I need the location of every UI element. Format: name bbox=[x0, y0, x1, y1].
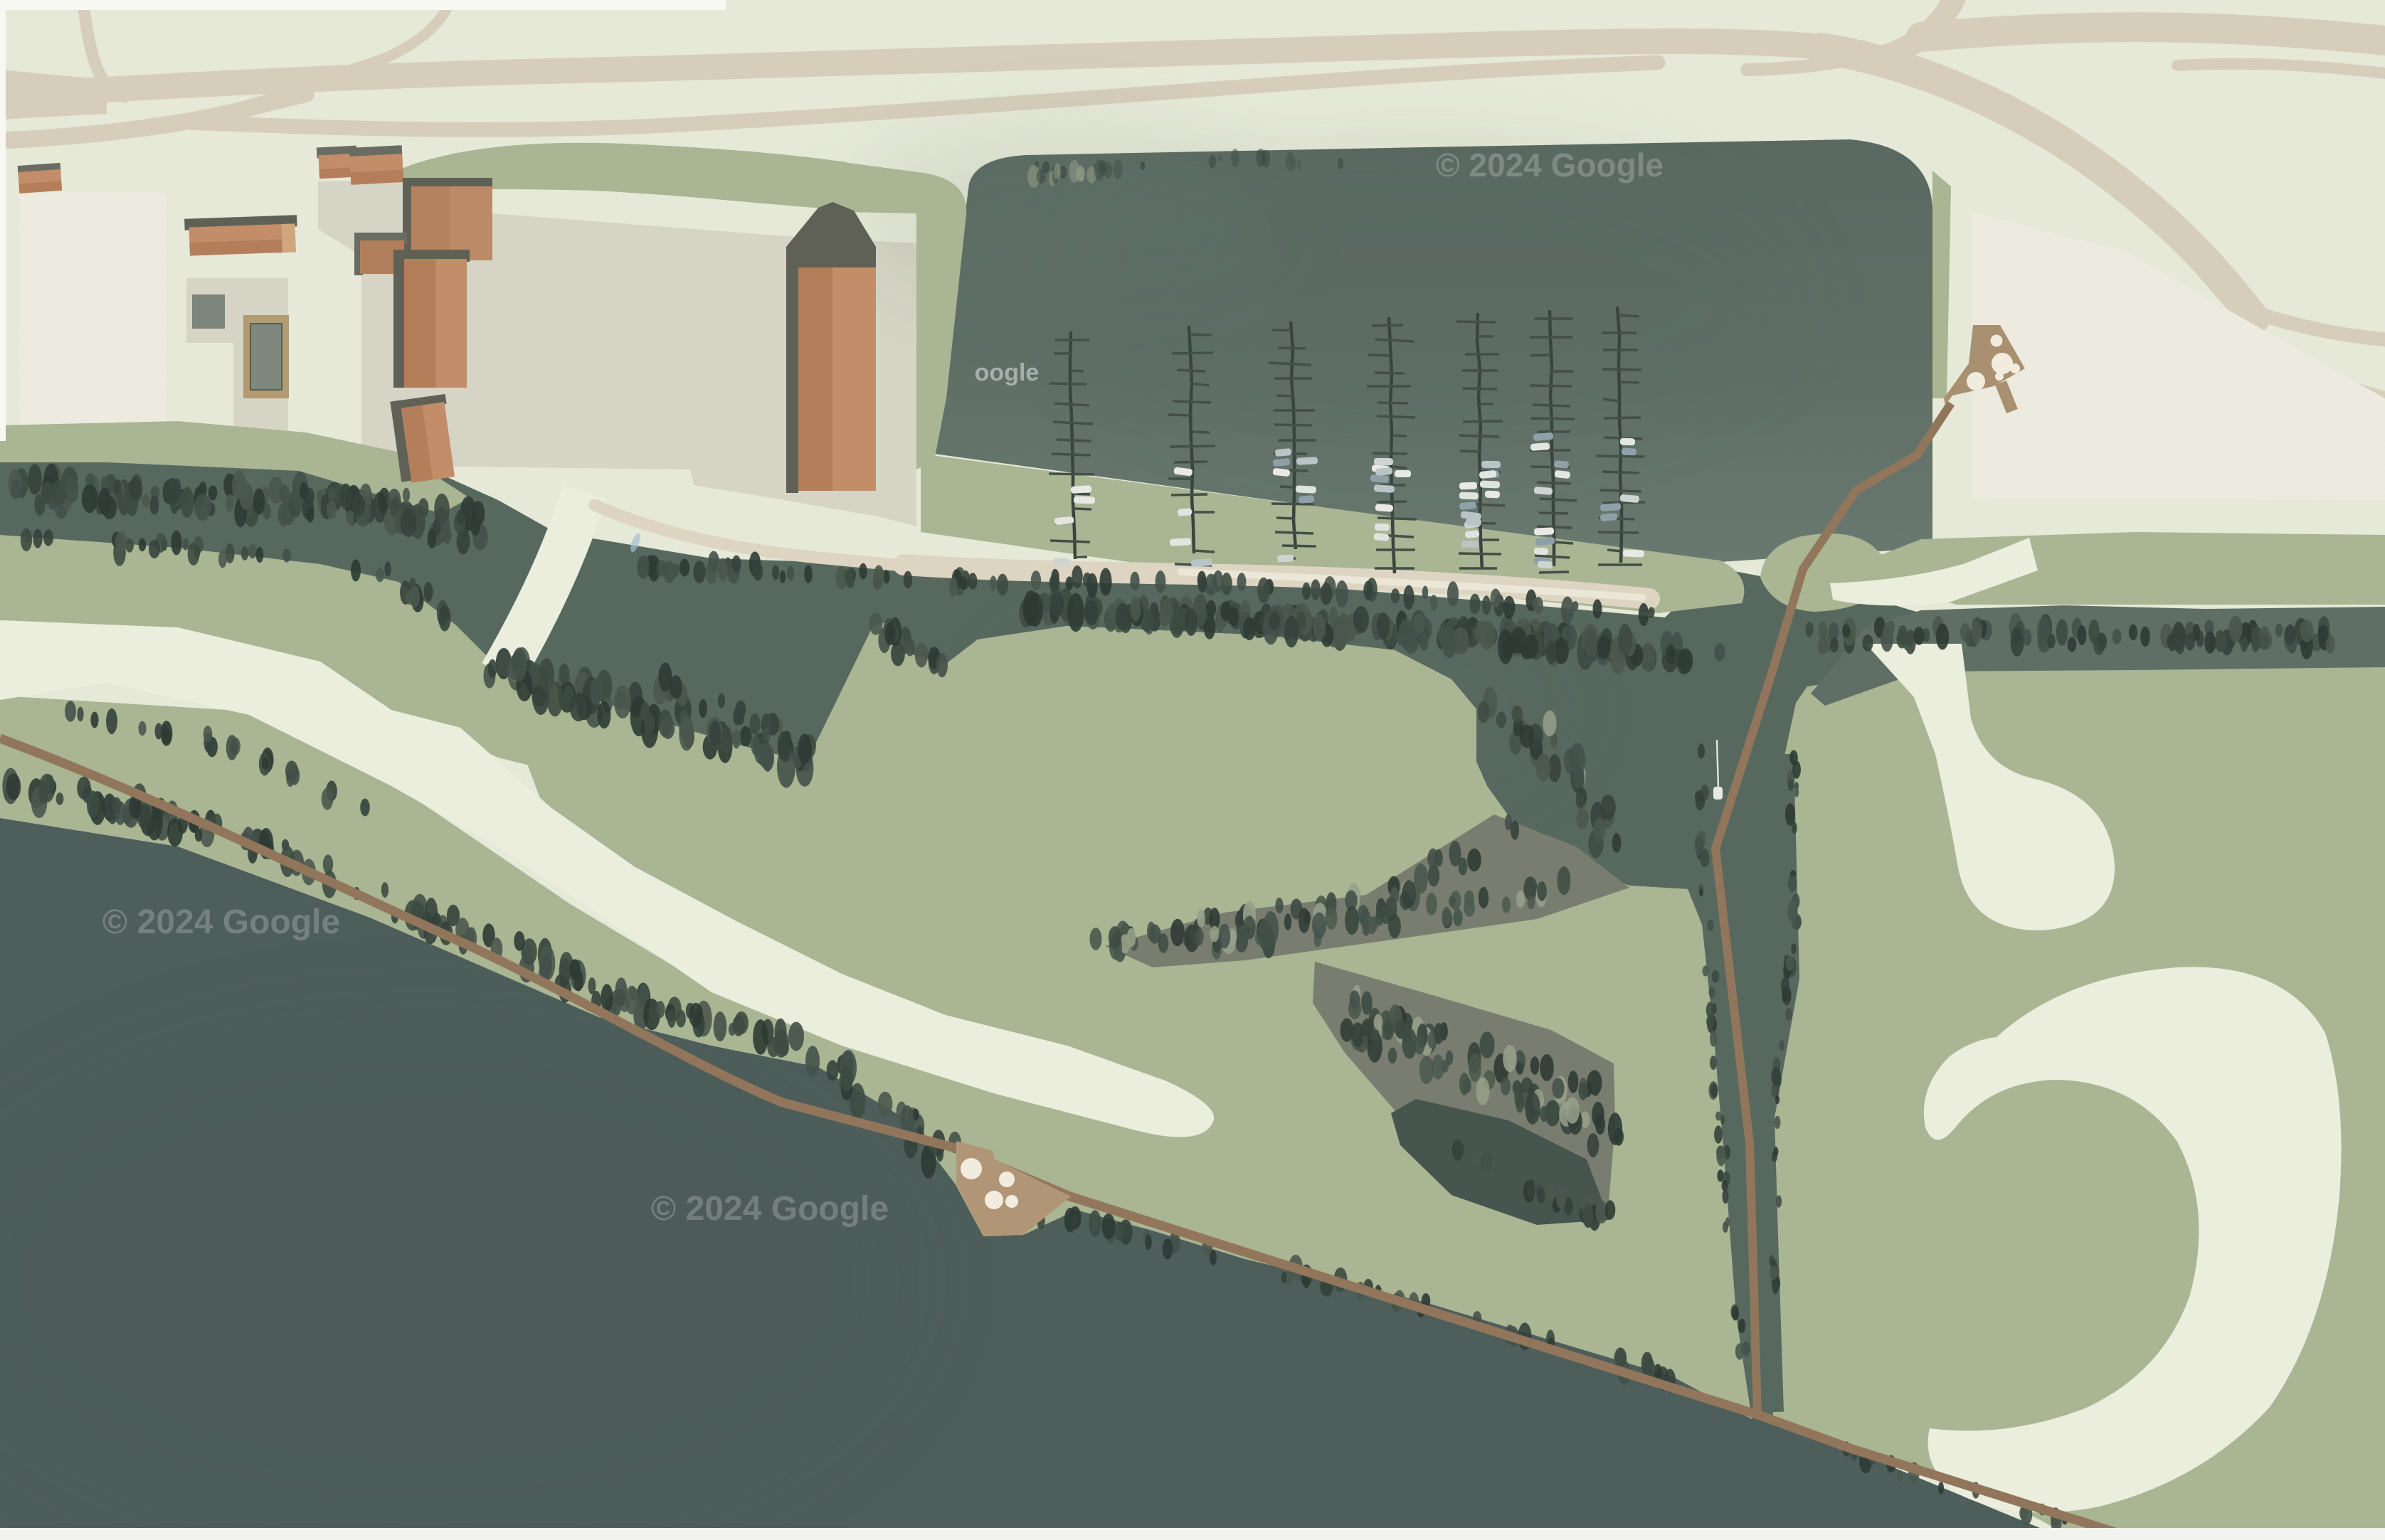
svg-text:© 2024 Google: © 2024 Google bbox=[1436, 147, 1664, 184]
svg-text:oogle: oogle bbox=[975, 359, 1040, 386]
svg-text:© 2024 Google: © 2024 Google bbox=[651, 1190, 889, 1228]
svg-text:© 2024 Google: © 2024 Google bbox=[102, 903, 340, 941]
